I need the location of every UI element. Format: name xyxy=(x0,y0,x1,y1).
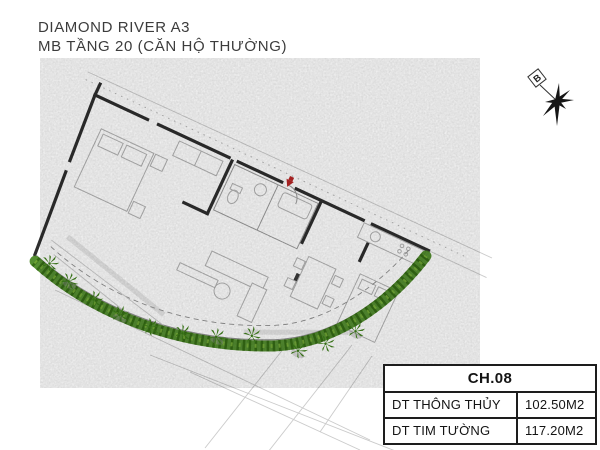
table-row: DT TIM TƯỜNG 117.20M2 xyxy=(385,417,595,443)
area-label-clear: DT THÔNG THỦY xyxy=(385,393,518,417)
area-value-clear: 102.50M2 xyxy=(518,393,595,417)
unit-info-table: CH.08 DT THÔNG THỦY 102.50M2 DT TIM TƯỜN… xyxy=(383,364,597,445)
area-label-gross: DT TIM TƯỜNG xyxy=(385,419,518,443)
scan-noise xyxy=(40,58,480,388)
unit-code: CH.08 xyxy=(385,366,595,393)
table-row: DT THÔNG THỦY 102.50M2 xyxy=(385,393,595,417)
area-value-gross: 117.20M2 xyxy=(518,419,595,443)
compass-north-icon: B xyxy=(528,69,574,126)
